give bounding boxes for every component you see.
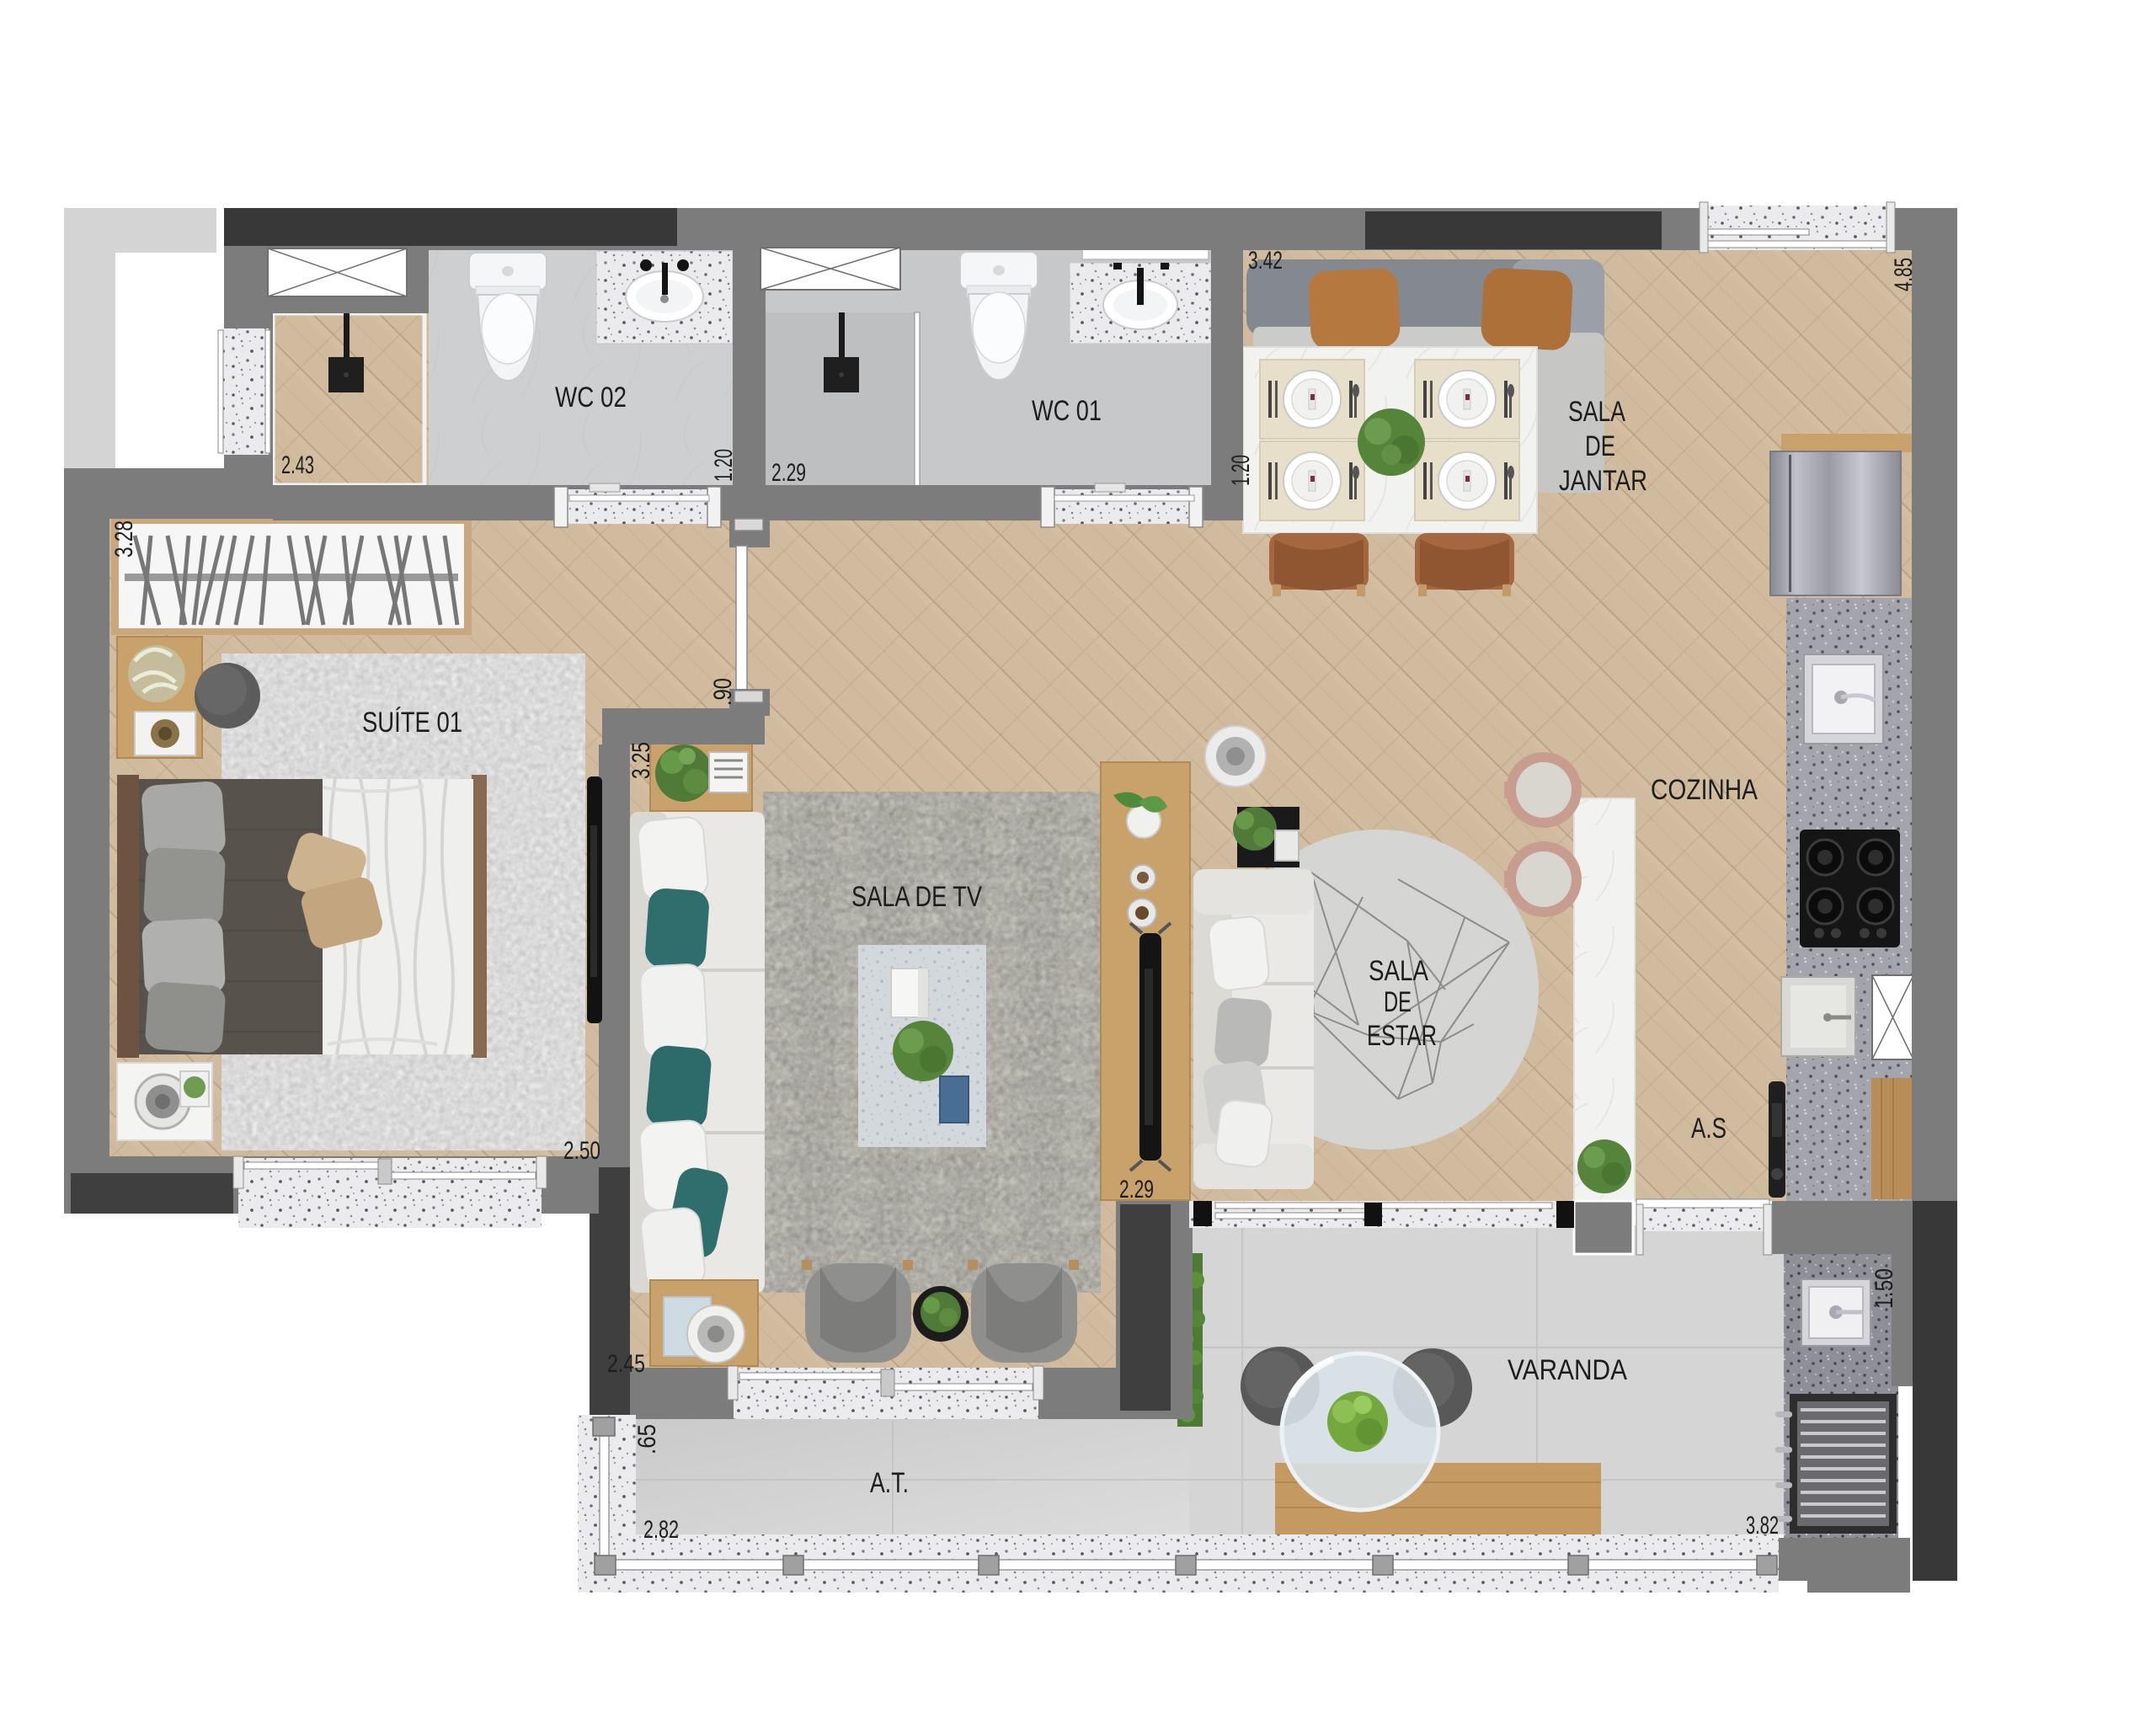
svg-text:3.28: 3.28 <box>110 520 138 558</box>
svg-text:SUÍTE 01: SUÍTE 01 <box>362 707 462 739</box>
svg-text:WC 02: WC 02 <box>555 382 627 414</box>
svg-text:3.42: 3.42 <box>1248 247 1283 275</box>
svg-text:A.S: A.S <box>1691 1113 1726 1145</box>
svg-text:COZINHA: COZINHA <box>1651 774 1758 806</box>
svg-text:ESTAR: ESTAR <box>1367 1020 1437 1052</box>
svg-text:DE: DE <box>1585 430 1615 462</box>
svg-text:SALA: SALA <box>1568 396 1625 428</box>
svg-text:SALA: SALA <box>1369 955 1428 987</box>
svg-text:SALA DE TV: SALA DE TV <box>851 881 982 913</box>
svg-text:2.82: 2.82 <box>643 1516 679 1544</box>
svg-text:1.20: 1.20 <box>710 449 738 482</box>
svg-text:A.T.: A.T. <box>870 1467 909 1499</box>
svg-text:DE: DE <box>1384 986 1412 1018</box>
svg-text:VARANDA: VARANDA <box>1508 1354 1627 1386</box>
svg-text:.65: .65 <box>633 1424 661 1454</box>
svg-text:1.50: 1.50 <box>1870 1268 1898 1309</box>
svg-text:1.20: 1.20 <box>1227 455 1255 486</box>
svg-text:3.25: 3.25 <box>627 742 655 779</box>
svg-text:2.45: 2.45 <box>607 1350 645 1378</box>
svg-text:.90: .90 <box>709 678 737 706</box>
svg-text:2.29: 2.29 <box>771 459 806 487</box>
svg-text:JANTAR: JANTAR <box>1559 465 1647 497</box>
svg-text:2.29: 2.29 <box>1119 1176 1154 1203</box>
svg-text:2.50: 2.50 <box>563 1137 600 1165</box>
svg-text:2.43: 2.43 <box>281 451 314 479</box>
svg-text:3.82: 3.82 <box>1746 1512 1779 1540</box>
svg-text:4.85: 4.85 <box>1890 258 1918 291</box>
svg-text:WC 01: WC 01 <box>1032 395 1102 427</box>
